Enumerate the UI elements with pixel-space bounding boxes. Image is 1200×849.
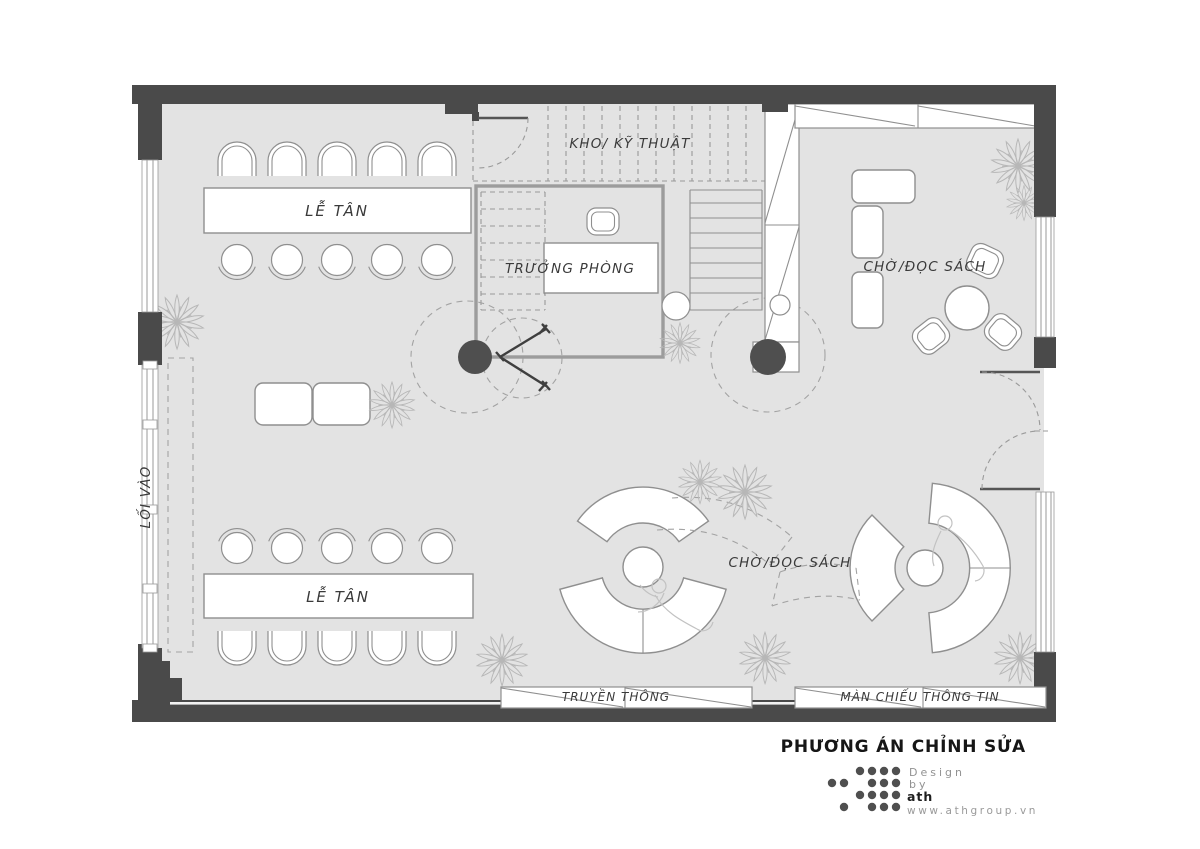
label-reading-bottom: CHỜ/ĐỌC SÁCH xyxy=(728,553,851,571)
floor-plan-drawing: KHO/ KỸ THUẬT TRƯỞNG PHÒNG LỄ TÂN LỄ TÂN… xyxy=(0,0,1200,849)
stool-2 xyxy=(770,295,790,315)
column-right xyxy=(750,339,786,375)
logo-dot xyxy=(828,779,836,787)
chair xyxy=(218,631,256,665)
ath-logo-text: ath xyxy=(907,789,933,804)
website-text: www.athgroup.vn xyxy=(907,805,1038,817)
manager-chair xyxy=(587,208,619,235)
logo-dot xyxy=(892,779,900,787)
logo-dot xyxy=(880,803,888,811)
chair xyxy=(368,631,406,665)
label-reception-top: LỄ TÂN xyxy=(305,199,369,220)
logo-dot xyxy=(892,767,900,775)
logo-dot xyxy=(880,779,888,787)
label-media: TRUYỀN THÔNG xyxy=(562,688,670,704)
sofa-seg-3 xyxy=(852,272,883,328)
label-entrance: LỐI VÀO xyxy=(135,466,154,529)
label-manager: TRƯỞNG PHÒNG xyxy=(505,258,635,277)
logo-dot xyxy=(892,803,900,811)
logo-dot xyxy=(856,767,864,775)
sofa-seg-1 xyxy=(852,170,915,203)
sofa-seg-2 xyxy=(852,206,883,258)
label-reading-top: CHỜ/ĐỌC SÁCH xyxy=(863,257,986,275)
ath-logo: Design by ath www.athgroup.vn xyxy=(828,766,1038,817)
logo-dot xyxy=(840,779,848,787)
chair xyxy=(268,631,306,665)
chair xyxy=(368,142,406,176)
left-window-top xyxy=(142,160,158,312)
chair xyxy=(418,631,456,665)
right-window-top xyxy=(1036,217,1054,337)
top-cabinet xyxy=(795,104,1037,128)
plan-title: PHƯƠNG ÁN CHỈNH SỬA xyxy=(781,733,1026,757)
chair xyxy=(318,142,356,176)
chair xyxy=(318,631,356,665)
chair xyxy=(418,142,456,176)
logo-dot xyxy=(892,791,900,799)
label-reception-bottom: LỄ TÂN xyxy=(306,585,370,606)
logo-dot xyxy=(868,803,876,811)
label-info-screen: MÀN CHIẾU THÔNG TIN xyxy=(840,688,999,704)
logo-dot xyxy=(840,803,848,811)
ath-logo-dots xyxy=(828,767,900,811)
chair xyxy=(218,142,256,176)
column-left xyxy=(458,340,492,374)
right-window-bottom xyxy=(1036,492,1054,652)
label-storage: KHO/ KỸ THUẬT xyxy=(569,135,691,152)
logo-dot xyxy=(880,791,888,799)
logo-dot xyxy=(856,791,864,799)
round-table xyxy=(945,286,989,330)
logo-dot xyxy=(880,767,888,775)
logo-dot xyxy=(868,779,876,787)
logo-dot xyxy=(868,767,876,775)
stool-1 xyxy=(662,292,690,320)
chair xyxy=(268,142,306,176)
floor-plan-page: KHO/ KỸ THUẬT TRƯỞNG PHÒNG LỄ TÂN LỄ TÂN… xyxy=(0,0,1200,849)
logo-dot xyxy=(868,791,876,799)
bench-sofa xyxy=(255,383,370,425)
